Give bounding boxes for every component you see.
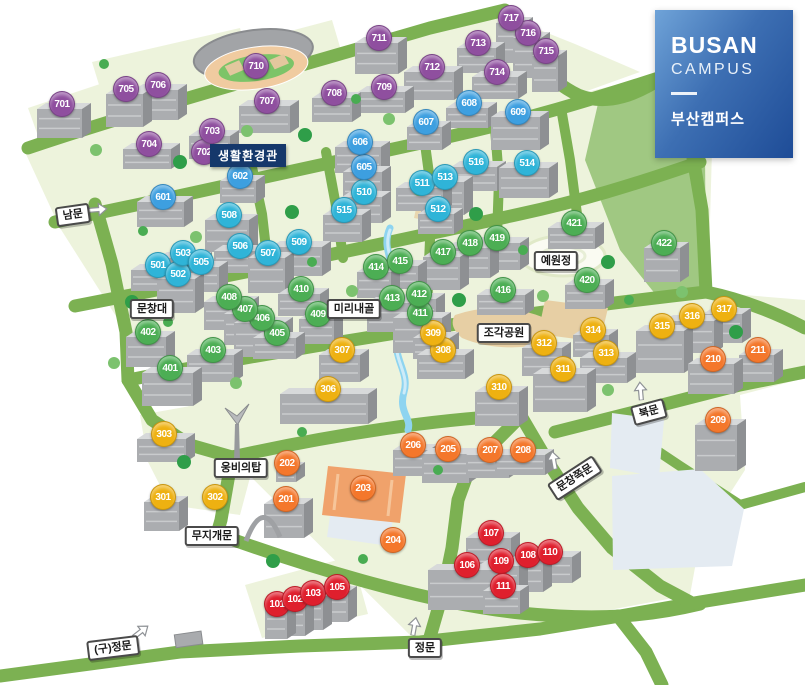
label-munchangdae: 문창대 <box>130 299 174 319</box>
marker-713[interactable]: 713 <box>465 30 491 56</box>
marker-105[interactable]: 105 <box>324 574 350 600</box>
marker-511[interactable]: 511 <box>409 170 435 196</box>
marker-211[interactable]: 211 <box>745 337 771 363</box>
marker-506[interactable]: 506 <box>227 233 253 259</box>
logo-title-en-line1: BUSAN <box>671 32 793 59</box>
tree <box>266 554 280 568</box>
tree <box>177 455 191 469</box>
marker-505[interactable]: 505 <box>188 249 214 275</box>
tree <box>298 128 312 142</box>
marker-301[interactable]: 301 <box>150 484 176 510</box>
marker-418[interactable]: 418 <box>457 230 483 256</box>
tree <box>351 94 361 104</box>
marker-111[interactable]: 111 <box>490 573 516 599</box>
direction-arrow <box>633 379 654 401</box>
marker-707[interactable]: 707 <box>254 88 280 114</box>
marker-207[interactable]: 207 <box>477 437 503 463</box>
marker-417[interactable]: 417 <box>430 239 456 265</box>
tree <box>90 144 102 156</box>
building-tooltip: 생활환경관 <box>210 144 286 167</box>
marker-303[interactable]: 303 <box>151 421 177 447</box>
tree <box>676 286 688 298</box>
marker-316[interactable]: 316 <box>679 303 705 329</box>
marker-509[interactable]: 509 <box>286 229 312 255</box>
tree <box>285 205 299 219</box>
tree <box>190 231 202 243</box>
marker-510[interactable]: 510 <box>351 179 377 205</box>
tree <box>729 325 743 339</box>
label-rainbow-gate: 무지개문 <box>185 526 239 546</box>
marker-408[interactable]: 408 <box>216 284 242 310</box>
marker-201[interactable]: 201 <box>273 486 299 512</box>
marker-204[interactable]: 204 <box>380 527 406 553</box>
marker-513[interactable]: 513 <box>432 164 458 190</box>
tree <box>241 125 253 137</box>
marker-206[interactable]: 206 <box>400 432 426 458</box>
tree <box>601 255 615 269</box>
marker-307[interactable]: 307 <box>329 337 355 363</box>
marker-415[interactable]: 415 <box>387 248 413 274</box>
marker-709[interactable]: 709 <box>371 74 397 100</box>
marker-421[interactable]: 421 <box>561 210 587 236</box>
marker-208[interactable]: 208 <box>510 437 536 463</box>
marker-414[interactable]: 414 <box>363 254 389 280</box>
logo-title-en-line2: CAMPUS <box>671 61 793 79</box>
marker-703[interactable]: 703 <box>199 118 225 144</box>
label-sculpture-park: 조각공원 <box>477 323 531 343</box>
marker-419[interactable]: 419 <box>484 225 510 251</box>
marker-314[interactable]: 314 <box>580 317 606 343</box>
marker-606[interactable]: 606 <box>347 129 373 155</box>
marker-704[interactable]: 704 <box>136 131 162 157</box>
direction-arrow <box>545 448 567 471</box>
tree <box>358 554 368 564</box>
marker-708[interactable]: 708 <box>321 80 347 106</box>
marker-306[interactable]: 306 <box>315 376 341 402</box>
marker-313[interactable]: 313 <box>593 340 619 366</box>
tree <box>108 357 120 369</box>
marker-608[interactable]: 608 <box>456 90 482 116</box>
marker-110[interactable]: 110 <box>537 539 563 565</box>
marker-516[interactable]: 516 <box>463 149 489 175</box>
marker-605[interactable]: 605 <box>351 154 377 180</box>
tree <box>307 257 317 267</box>
marker-317[interactable]: 317 <box>711 296 737 322</box>
tree <box>537 290 549 302</box>
tree <box>469 207 483 221</box>
logo-divider <box>671 92 697 95</box>
tree <box>173 155 187 169</box>
marker-609[interactable]: 609 <box>505 99 531 125</box>
marker-413[interactable]: 413 <box>379 285 405 311</box>
busan-campus-map: 1011021031051061071081091101112012022032… <box>0 0 805 685</box>
label-mirinae-valley: 미리내골 <box>327 299 381 319</box>
marker-205[interactable]: 205 <box>435 436 461 462</box>
marker-712[interactable]: 712 <box>419 54 445 80</box>
marker-302[interactable]: 302 <box>202 484 228 510</box>
marker-401[interactable]: 401 <box>157 355 183 381</box>
marker-701[interactable]: 701 <box>49 91 75 117</box>
marker-403[interactable]: 403 <box>200 337 226 363</box>
label-yewonjeong: 예원정 <box>534 251 578 271</box>
marker-315[interactable]: 315 <box>649 313 675 339</box>
marker-422[interactable]: 422 <box>651 230 677 256</box>
marker-209[interactable]: 209 <box>705 407 731 433</box>
marker-714[interactable]: 714 <box>484 59 510 85</box>
marker-705[interactable]: 705 <box>113 76 139 102</box>
tree <box>346 285 358 297</box>
marker-109[interactable]: 109 <box>488 548 514 574</box>
marker-508[interactable]: 508 <box>216 202 242 228</box>
marker-106[interactable]: 106 <box>454 552 480 578</box>
marker-512[interactable]: 512 <box>425 196 451 222</box>
marker-310[interactable]: 310 <box>486 374 512 400</box>
marker-107[interactable]: 107 <box>478 520 504 546</box>
marker-402[interactable]: 402 <box>135 319 161 345</box>
marker-203[interactable]: 203 <box>350 475 376 501</box>
tree <box>433 465 443 475</box>
direction-arrow <box>406 615 428 638</box>
tree <box>383 113 395 125</box>
tree <box>518 245 528 255</box>
marker-710[interactable]: 710 <box>243 53 269 79</box>
label-main-gate: 정문 <box>408 638 442 658</box>
marker-312[interactable]: 312 <box>531 330 557 356</box>
marker-717[interactable]: 717 <box>498 5 524 31</box>
marker-601[interactable]: 601 <box>150 184 176 210</box>
marker-514[interactable]: 514 <box>514 150 540 176</box>
marker-706[interactable]: 706 <box>145 72 171 98</box>
label-ungbi-tower: 웅비의탑 <box>214 458 268 478</box>
marker-410[interactable]: 410 <box>288 276 314 302</box>
tree <box>624 295 634 305</box>
marker-412[interactable]: 412 <box>406 281 432 307</box>
tree <box>452 293 466 307</box>
marker-311[interactable]: 311 <box>550 356 576 382</box>
tree <box>138 226 148 236</box>
marker-202[interactable]: 202 <box>274 450 300 476</box>
tree <box>297 427 307 437</box>
campus-logo-badge: BUSAN CAMPUS 부산캠퍼스 <box>655 10 793 158</box>
tree <box>230 377 242 389</box>
marker-103[interactable]: 103 <box>300 580 326 606</box>
marker-515[interactable]: 515 <box>331 197 357 223</box>
tree <box>99 59 109 69</box>
marker-507[interactable]: 507 <box>255 240 281 266</box>
marker-711[interactable]: 711 <box>366 25 392 51</box>
tree <box>602 384 614 396</box>
logo-title-ko: 부산캠퍼스 <box>671 108 793 129</box>
marker-607[interactable]: 607 <box>413 109 439 135</box>
marker-420[interactable]: 420 <box>574 267 600 293</box>
marker-416[interactable]: 416 <box>490 277 516 303</box>
marker-210[interactable]: 210 <box>700 346 726 372</box>
direction-arrow <box>88 202 110 223</box>
